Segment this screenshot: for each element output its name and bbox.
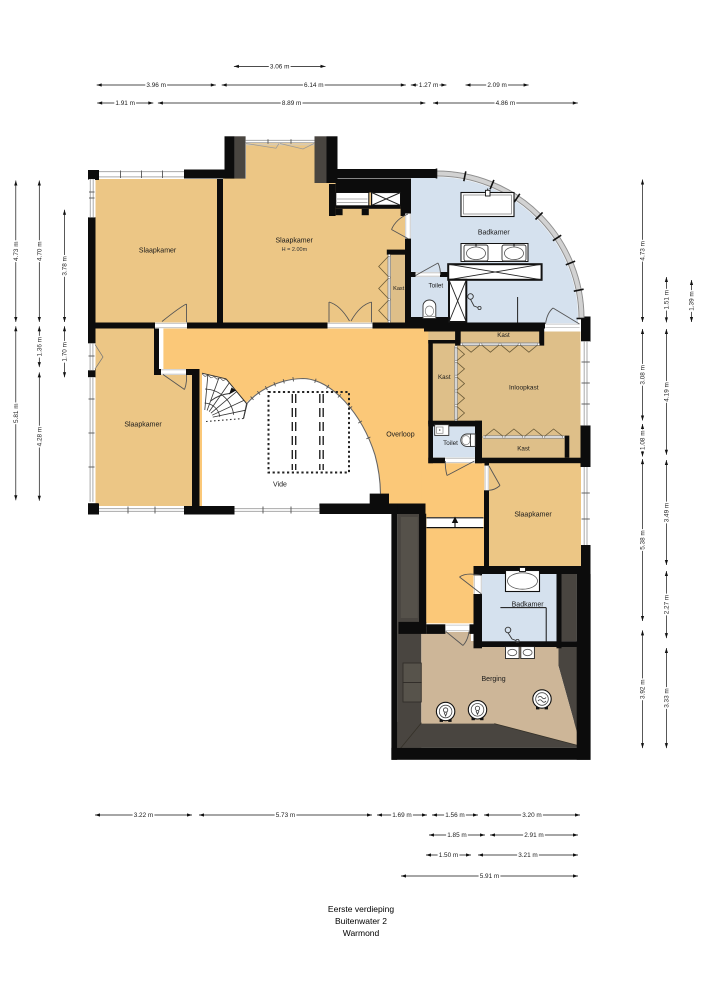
svg-text:Kast: Kast xyxy=(497,332,510,339)
svg-text:1.70 m: 1.70 m xyxy=(62,342,69,362)
svg-text:Slaapkamer: Slaapkamer xyxy=(514,512,552,519)
svg-text:1.36 m: 1.36 m xyxy=(37,337,44,357)
svg-text:Slaapkamer: Slaapkamer xyxy=(139,248,177,255)
svg-text:H = 2.00m: H = 2.00m xyxy=(282,247,308,253)
svg-text:Eerste verdieping: Eerste verdieping xyxy=(328,904,394,914)
svg-text:Warmond: Warmond xyxy=(343,928,380,938)
svg-text:2.09 m: 2.09 m xyxy=(487,82,507,89)
svg-text:3.78 m: 3.78 m xyxy=(62,256,69,276)
svg-text:Badkamer: Badkamer xyxy=(478,230,511,237)
svg-text:1.27 m: 1.27 m xyxy=(419,82,439,89)
svg-text:5.81 m: 5.81 m xyxy=(13,403,20,423)
svg-text:1.08 m: 1.08 m xyxy=(640,430,647,450)
svg-text:Kast: Kast xyxy=(393,286,405,292)
svg-text:3.08 m: 3.08 m xyxy=(640,365,647,385)
svg-text:6.14 m: 6.14 m xyxy=(304,82,324,89)
svg-text:Slaapkamer: Slaapkamer xyxy=(276,238,314,245)
svg-text:4.73 m: 4.73 m xyxy=(640,241,647,261)
svg-text:3.96 m: 3.96 m xyxy=(146,82,166,89)
svg-text:4.73 m: 4.73 m xyxy=(13,241,20,261)
svg-text:4.28 m: 4.28 m xyxy=(37,427,44,447)
svg-text:1.56 m: 1.56 m xyxy=(445,812,465,819)
svg-text:8.89 m: 8.89 m xyxy=(282,100,302,107)
svg-text:4.70 m: 4.70 m xyxy=(37,241,44,261)
svg-text:Slaapkamer: Slaapkamer xyxy=(124,422,162,429)
svg-text:Buitenwater 2: Buitenwater 2 xyxy=(335,916,387,926)
svg-text:1.91 m: 1.91 m xyxy=(115,100,135,107)
svg-text:3.33 m: 3.33 m xyxy=(664,688,671,708)
svg-text:1.69 m: 1.69 m xyxy=(392,812,412,819)
svg-text:1.51 m: 1.51 m xyxy=(664,290,671,310)
svg-text:Overloop: Overloop xyxy=(386,432,415,439)
svg-text:3.22 m: 3.22 m xyxy=(134,812,154,819)
svg-text:5.38 m: 5.38 m xyxy=(640,530,647,550)
svg-text:4.19 m: 4.19 m xyxy=(664,382,671,402)
svg-text:2.91 m: 2.91 m xyxy=(524,832,544,839)
svg-text:Kast: Kast xyxy=(438,374,451,381)
svg-text:5.73 m: 5.73 m xyxy=(276,812,296,819)
svg-text:2.27 m: 2.27 m xyxy=(664,595,671,615)
svg-text:1.39 m: 1.39 m xyxy=(689,291,696,311)
svg-text:Toilet: Toilet xyxy=(443,440,458,447)
svg-text:3.92 m: 3.92 m xyxy=(640,679,647,699)
svg-text:3.20 m: 3.20 m xyxy=(522,812,542,819)
svg-text:3.21 m: 3.21 m xyxy=(518,852,538,859)
svg-text:3.49 m: 3.49 m xyxy=(664,503,671,523)
svg-text:5.91 m: 5.91 m xyxy=(480,873,500,880)
svg-text:Toilet: Toilet xyxy=(428,283,443,290)
svg-text:1.50 m: 1.50 m xyxy=(439,852,459,859)
svg-text:Berging: Berging xyxy=(482,676,506,683)
svg-text:Badkamer: Badkamer xyxy=(512,602,545,609)
svg-text:Kast: Kast xyxy=(517,445,530,452)
svg-text:4.86 m: 4.86 m xyxy=(496,100,516,107)
svg-text:3.06 m: 3.06 m xyxy=(270,64,290,71)
svg-text:1.85 m: 1.85 m xyxy=(447,832,467,839)
svg-text:Vide: Vide xyxy=(273,482,287,489)
svg-text:Inloopkast: Inloopkast xyxy=(509,384,539,391)
